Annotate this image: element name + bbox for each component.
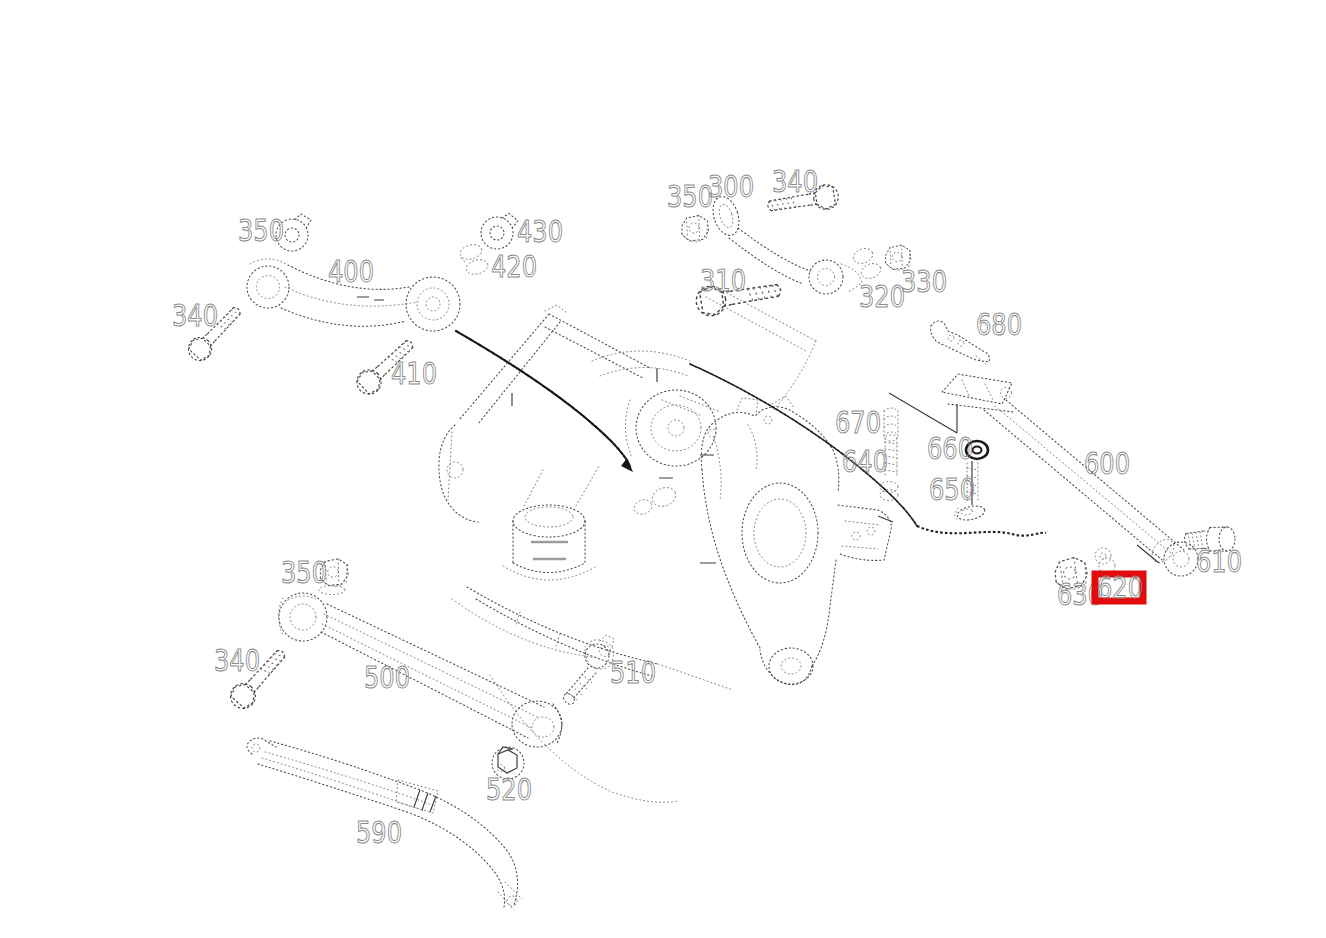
- label-600[interactable]: 600: [1084, 446, 1130, 481]
- label-420[interactable]: 420: [491, 249, 537, 284]
- label-590[interactable]: 590: [356, 815, 402, 850]
- group-bracket-680: 680: [931, 307, 1022, 364]
- label-320[interactable]: 320: [859, 279, 905, 314]
- label-350-top[interactable]: 350: [667, 179, 713, 214]
- label-430[interactable]: 430: [517, 214, 563, 249]
- group-640: 640: [842, 435, 898, 501]
- suspension-exploded-diagram: 350 400 430 420 340 410 350 300: [0, 0, 1326, 938]
- label-610[interactable]: 610: [1196, 544, 1242, 579]
- group-top-center: 350 300 340 310 320 330: [667, 164, 947, 412]
- bolt-510-icon: [562, 635, 614, 706]
- group-650: 650: [929, 461, 986, 522]
- label-620-highlighted[interactable]: 620: [1097, 570, 1143, 605]
- washers-420-icon: [459, 242, 490, 276]
- label-310[interactable]: 310: [700, 263, 746, 298]
- nut-350-top-icon: [682, 216, 709, 242]
- cable-arrow-tip: [621, 458, 633, 472]
- nut-430-icon: [479, 210, 519, 252]
- label-330[interactable]: 330: [901, 264, 947, 299]
- label-640[interactable]: 640: [842, 444, 888, 479]
- label-350-upper-left[interactable]: 350: [238, 213, 284, 248]
- label-660[interactable]: 660: [927, 431, 973, 466]
- label-520[interactable]: 520: [486, 772, 532, 807]
- label-650[interactable]: 650: [929, 472, 975, 507]
- boot-670-icon: [884, 408, 898, 436]
- label-350-lower[interactable]: 350: [281, 555, 327, 590]
- group-630-620: 630 620: [1054, 548, 1143, 612]
- label-340-lower[interactable]: 340: [214, 643, 260, 678]
- label-340-upper-left[interactable]: 340: [172, 298, 218, 333]
- subframe-mount-cylinder: [503, 505, 597, 580]
- label-680[interactable]: 680: [976, 307, 1022, 342]
- group-upper-left: 350 400 430 420 340 410: [172, 210, 563, 399]
- strut-lines: [706, 287, 816, 412]
- label-510[interactable]: 510: [610, 655, 656, 690]
- subframe-differential-drawing: [439, 305, 733, 802]
- label-410[interactable]: 410: [391, 356, 437, 391]
- label-500[interactable]: 500: [364, 660, 410, 695]
- label-340-top[interactable]: 340: [772, 164, 818, 199]
- label-300[interactable]: 300: [708, 169, 754, 204]
- group-lower-left: 350 340 500 510 520: [214, 555, 656, 807]
- washers-320-icon: [851, 246, 883, 281]
- group-660: 660: [927, 431, 988, 466]
- leader-line-670: [889, 393, 957, 433]
- parts-diagram-canvas: 350 400 430 420 340 410 350 300: [0, 0, 1326, 938]
- label-400[interactable]: 400: [328, 254, 374, 289]
- label-670[interactable]: 670: [835, 405, 881, 440]
- group-link-590: 590: [247, 738, 522, 910]
- track-rod-500-drawing: [279, 593, 563, 747]
- group-arm-600: 600: [942, 374, 1198, 576]
